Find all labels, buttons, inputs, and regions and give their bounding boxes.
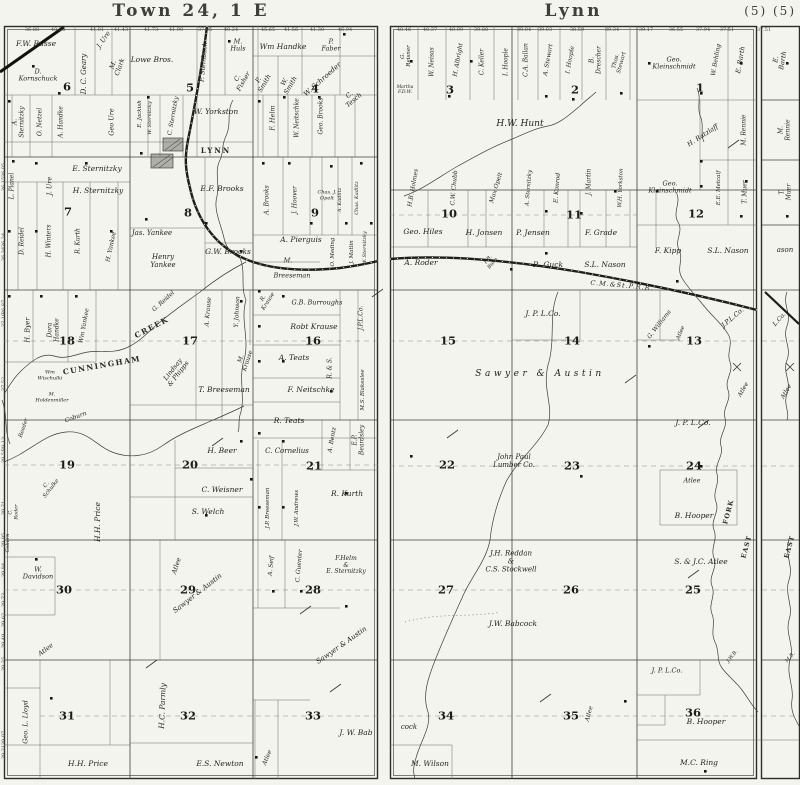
parcel-label: O. Meding [330,238,336,267]
parcel-label: A. Krause [204,297,213,327]
parcel-label: A. Kadlitz [338,188,344,213]
parcel-label: J.W.B. [726,650,739,665]
parcel-label: J. Ure [46,177,53,196]
parcel-label: J.W. Andrews [294,490,300,526]
parcel-label: M. Holdenmiller [35,392,68,403]
acreage-number: 40.37 [423,28,437,34]
parcel-label: J.W. Babcock [489,620,537,628]
edge-acreage-number: 36.34 [2,247,8,261]
parcel-label: G.W. Brooks [205,248,251,256]
acreage-number: 41.73 [144,28,158,34]
parcel-label: C. Tesch [340,86,364,109]
section-number: 1 [696,82,704,95]
parcel-label: T. Muer [743,180,750,203]
parcel-label: W.H. Yorkston [617,168,625,207]
acreage-number: 40.24 [224,28,238,34]
parcel-label: A. Brooks [265,185,272,214]
acreage-number: 40.46 [397,28,411,34]
edge-acreage-number: 39.35 [2,657,8,671]
edge-acreage-number: 39.84 [2,563,8,577]
parcel-label: J. Hoover [293,186,300,214]
parcel-label: H.H. Price [94,502,102,542]
parcel-label: J. P. L.Co. [525,310,560,318]
parcel-label: M. Rennie [778,119,791,140]
parcel-label: T. Muer [779,184,792,200]
parcel-label: C. Weisner [202,486,243,494]
acreage-number: 39.03 [538,28,552,34]
parcel-label: F. Kipp [655,247,681,255]
parcel-label: H.C. Parmly [158,683,168,729]
parcel-label: Thos. Stewart [610,50,628,74]
parcel-label: Robt Krause [290,323,337,331]
parcel-label: S.L. Nason [707,247,748,255]
parcel-label: R. Krause [256,288,277,311]
parcel-label: J.P.L.Co. [721,307,746,330]
acreage-number: 41.30 [310,28,324,34]
parcel-label: M.B. [785,652,797,665]
edge-acreage-number: 36.05 [2,163,8,177]
parcel-label: B. Hooper [675,512,714,520]
edge-acreage-number: 39.71 [2,501,8,515]
parcel-label: J.P.L.Co. [359,306,366,330]
parcel-label: Martha F.D.W. [397,85,414,95]
parcel-label: Chas. Kadlitz [355,181,361,215]
section-number: 34 [438,710,454,723]
parcel-label: G. Williams [647,309,674,340]
acreage-number: 37.94 [696,28,710,34]
parcel-label: M. Krause [235,348,254,373]
parcel-label: A. Pierguis [280,236,322,244]
edge-acreage-number: 36.15 [2,177,8,191]
parcel-label: I. Hoople [504,48,511,76]
parcel-label: Atlee [780,384,794,401]
parcel-label: H. Ratzlaff [686,123,720,148]
parcel-label: H. Jonsen [466,229,503,237]
parcel-label: C.A. Ballan [524,43,531,77]
parcel-label: O. Netzel [38,108,45,136]
parcel-label: E. Barth [735,46,747,74]
parcel-label: Lindsay & Phipps [161,356,191,389]
parcel-label: J. W. Bab [339,729,372,737]
parcel-label: Geo. Kleinschmidt [652,57,695,72]
railroad-label: C.M.&St.P.R.R. [590,280,654,293]
parcel-label: I. Hoople [565,46,576,75]
parcel-label: F. Grade [585,229,617,237]
section-number: 16 [305,335,321,348]
parcel-label: E. Barth [771,49,789,71]
parcel-label: A. Handke [59,106,66,138]
parcel-label: C.W. Chubb [450,170,460,206]
parcel-label: Henry Yankee [150,254,175,270]
parcel-label: F. Helm [269,105,276,130]
parcel-label: M.S. Blakeslee [360,369,366,410]
parcel-label: Wm Wischulki [38,370,63,381]
creek-label: CUNNINGHAM [62,355,141,377]
parcel-label: F.W. Busse [16,40,56,48]
parcel-label: J. Martin [587,169,594,196]
section-number: 12 [688,208,704,221]
acreage-number: 37.51 [757,28,771,34]
section-number: 30 [56,584,72,597]
parcel-label: B. Drescher [589,46,602,74]
parcel-label: E.S. Newton [196,760,243,768]
acreage-number: 41.01 [90,28,104,34]
acreage-number: 40.55 [51,28,65,34]
parcel-label: E. Sternitzky [72,165,121,173]
parcel-label: Wm Handke [260,43,307,51]
parcel-label: Max Opelt [489,172,505,204]
parcel-label: J. Matlin [349,240,355,263]
town-label: LYNN [201,147,231,155]
parcel-label: Chas. J. Opelt [318,190,337,201]
parcel-label: E. Konrod [553,173,562,204]
section-number: 25 [685,584,701,597]
acreage-number: 37.05 [198,28,212,34]
parcel-label: Atlee [171,557,183,575]
parcel-label: Jas. Yankee [132,230,172,238]
acreage-number: 38.59 [570,28,584,34]
parcel-label: A. Teats [279,354,309,362]
section-number: 35 [563,710,579,723]
parcel-label: Sawyer & Austin [475,369,604,379]
parcel-label: D. C. Geary [81,54,89,95]
parcel-label: R. Teats [274,417,305,425]
acreage-number: 41.56 [284,28,298,34]
parcel-label: E. Jackish [137,100,143,128]
edge-acreage-number: 39.21 [2,745,8,759]
parcel-label: ason [777,247,794,255]
parcel-label: H. Beer [207,447,236,455]
parcel-label: C. Roder [8,504,19,519]
parcel-label: Geo. L. Lloyd [22,700,29,744]
parcel-label: Breeseman [274,272,311,279]
parcel-label: Coburn [64,411,88,425]
acreage-number: 46.94 [338,28,352,34]
acreage-number: 36.88 [25,28,39,34]
parcel-label: P. Steinbach [199,42,210,83]
parcel-label: Atlee [585,706,596,723]
parcel-label: J. P. L.Co. [652,667,683,674]
parcel-label: D. Kornschuck [19,69,58,84]
parcel-label: W. Sternitzky [363,231,369,265]
parcel-label: W. Schroeder [303,61,343,98]
parcel-label: C. Fisher [229,67,252,93]
creek-label: EAST [740,535,753,560]
parcel-label: H. Sternitzky [73,187,123,195]
parcel-label: C. Sternitzky [167,96,180,136]
parcel-label: G. Reidel [151,290,176,314]
parcel-label: Atlee [737,382,751,399]
parcel-label: Geo Ure [108,108,115,135]
parcel-label: A. Seif [268,556,276,576]
section-number: 36 [685,707,701,720]
parcel-label: D. Reidel [20,227,27,255]
section-number: 5 [186,82,194,95]
section-number: 7 [64,206,72,219]
acreage-number: 39.04 [517,28,531,34]
acreage-number: 45.65 [261,28,275,34]
parcel-label: H.B. Holmes [407,168,420,207]
parcel-label: J. P. L.Co. [675,419,710,427]
parcel-label: R. & S. [328,357,335,378]
parcel-label: E.F. Brooks [200,185,243,193]
section-number: 4 [311,83,319,96]
parcel-label: Y. Johnson [234,296,242,328]
parcel-label: F.Helm & E. Sternitzky [326,556,366,576]
section-number: 3 [446,84,454,97]
parcel-label: M. Clark [107,55,127,77]
parcel-label: W. Davidson [23,567,53,582]
section-number: 13 [686,335,702,348]
section-number: 18 [59,335,75,348]
creek-label: FORK [722,499,736,525]
acreage-number: 40.99 [449,28,463,34]
parcel-label: Atlee [675,325,686,341]
parcel-label: Wm Yankee [79,308,92,344]
parcel-label: S. Welch [192,508,225,516]
parcel-label: G. Reisner [400,45,412,66]
section-number: 21 [306,460,322,473]
acreage-number: 39.80 [474,28,488,34]
parcel-label: W. Neisas [430,47,437,76]
parcel-label: W. Yorkston [194,108,238,116]
edge-acreage-number: 36.24 [2,233,8,247]
parcel-label: L. Planel [10,173,17,200]
parcel-label: G.B. Burroughs [292,299,343,306]
parcel-label: M.C. Ring [680,759,718,767]
parcel-label: M. [284,257,293,264]
parcel-label: Geo. Hiles [403,228,442,236]
parcel-label: H.H. Price [68,760,108,768]
parcel-label: C. Cornelius [265,448,309,456]
parcel-label: Geo. Kleinschmidt [648,181,691,196]
parcel-label: Atlee [37,642,55,658]
edge-acreage-number: 39.51 [2,449,8,463]
parcel-label: M. Wilson [411,760,449,768]
parcel-label: A. Stewart [543,44,555,77]
parcel-label: Sawyer & Austin [315,626,368,667]
parcel-label: J.P. Breeseman [265,488,271,529]
parcel-label: P. Smith [251,70,273,94]
parcel-label: E.E. Metcalf [716,171,722,206]
parcel-label: A. Sternitzky [12,106,25,137]
section-number: 10 [441,208,457,221]
parcel-label: Reeder [18,418,30,439]
section-number: 22 [439,459,455,472]
parcel-label: A. Sternitzky [524,170,533,207]
parcel-label: C. Guenter [295,549,305,583]
creek-label: CREEK [133,315,170,340]
parcel-label: A. Roder [404,259,437,267]
parcel-label: John Paul Lumber Co. [493,454,535,470]
parcel-label: H.W. Hunt [496,119,543,129]
section-number: 33 [305,710,321,723]
parcel-label: H. Yankee [106,231,119,262]
edge-acreage-number: 37.19 [2,313,8,327]
parcel-label: C. Keller [480,49,487,75]
acreage-number: 41.90 [169,28,183,34]
parcel-label: Atlee [262,749,274,766]
section-number: 32 [180,710,196,723]
parcel-label: E.P. Beardsley [352,425,365,455]
section-number: 29 [180,584,196,597]
parcel-label: R. Guck [533,261,563,269]
section-number: 11 [566,209,582,222]
section-number: 6 [63,81,71,94]
section-number: 20 [182,459,198,472]
section-number: 14 [564,335,580,348]
parcel-label: W. Sternitzky [148,101,154,135]
section-number: 27 [438,584,454,597]
parcel-label: S.L. Nason [584,261,625,269]
edge-acreage-number: 39.49 [2,634,8,648]
parcel-label: T. Breeseman [198,386,249,394]
parcel-label: H. Byer [24,317,31,342]
plat-map-page: Town 24, 1 E Lynn (5) (5) [0,0,800,785]
parcel-label: R. Kurth [331,490,363,498]
parcel-label: Atlee [684,477,701,484]
section-number: 2 [571,84,579,97]
acreage-number: 41.43 [114,28,128,34]
section-number: 31 [59,710,75,723]
map-labels-layer: F.W. BusseD. KornschuckD. C. GearyM. Cla… [0,0,800,785]
section-number: 15 [440,335,456,348]
parcel-label: P. Faber [321,39,340,54]
creek-label: EAST [783,535,796,560]
edge-acreage-number: 37.52 [2,377,8,391]
acreage-number: 36.55 [669,28,683,34]
parcel-label: S. & J.C. Atlee [674,558,727,566]
edge-acreage-number: 39.95 [2,533,8,547]
parcel-label: M. Rennie [742,114,749,145]
parcel-label: L.Co. [772,312,788,328]
parcel-label: W. Behling [711,44,723,77]
parcel-label: A. Bentz [327,427,338,453]
parcel-label: H. Winters [47,225,54,258]
parcel-label: J.H. Reddan & C.S. Stockwell [486,550,537,573]
section-number: 19 [59,459,75,472]
parcel-label: Geo. Brooks [319,98,326,135]
parcel-label: W. Smith [277,72,299,96]
parcel-label: H. Albright [453,43,466,78]
acreage-number: 39.17 [639,28,653,34]
section-number: 26 [563,584,579,597]
parcel-label: Lowe Bros. [131,56,174,64]
parcel-label: W. Neitschke [295,98,302,138]
edge-acreage-number: 39.07 [2,731,8,745]
parcel-label: P. Jensen [516,229,550,237]
acreage-number: 39.34 [605,28,619,34]
section-number: 17 [182,335,198,348]
section-number: 23 [564,460,580,473]
section-number: 28 [305,584,321,597]
parcel-label: M. Huls [230,39,245,54]
edge-acreage-number: 39.62 [2,613,8,627]
parcel-label: F. Neitschke [287,386,334,394]
acreage-number: 37.51 [720,28,734,34]
edge-acreage-number: 39.73 [2,593,8,607]
section-number: 8 [184,207,192,220]
parcel-label: F.B. Biele [483,254,500,271]
parcel-label: C. Schulke [37,474,60,499]
parcel-label: cock [401,724,417,732]
section-number: 24 [686,460,702,473]
section-number: 9 [311,207,319,220]
parcel-label: R. Kurth [76,228,83,254]
